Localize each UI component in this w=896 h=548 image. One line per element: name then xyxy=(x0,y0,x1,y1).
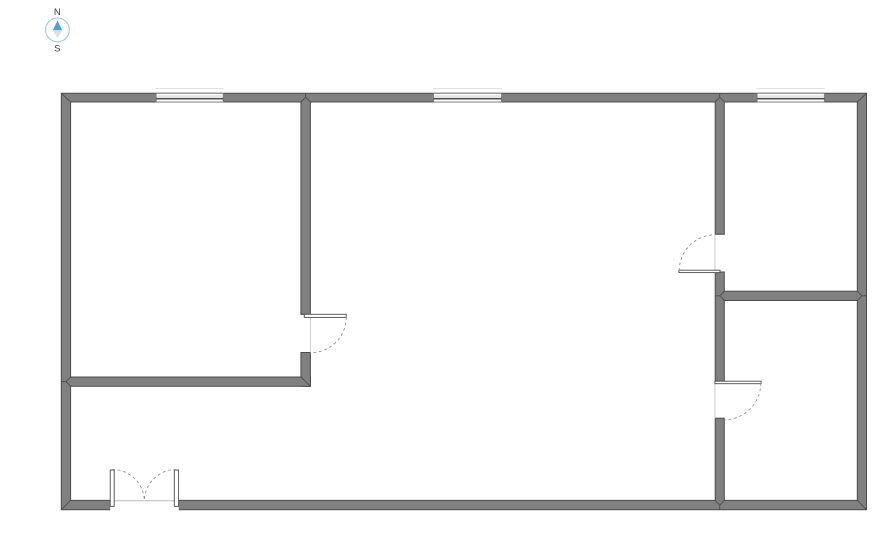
svg-text:N: N xyxy=(54,7,61,18)
svg-text:S: S xyxy=(54,44,60,55)
